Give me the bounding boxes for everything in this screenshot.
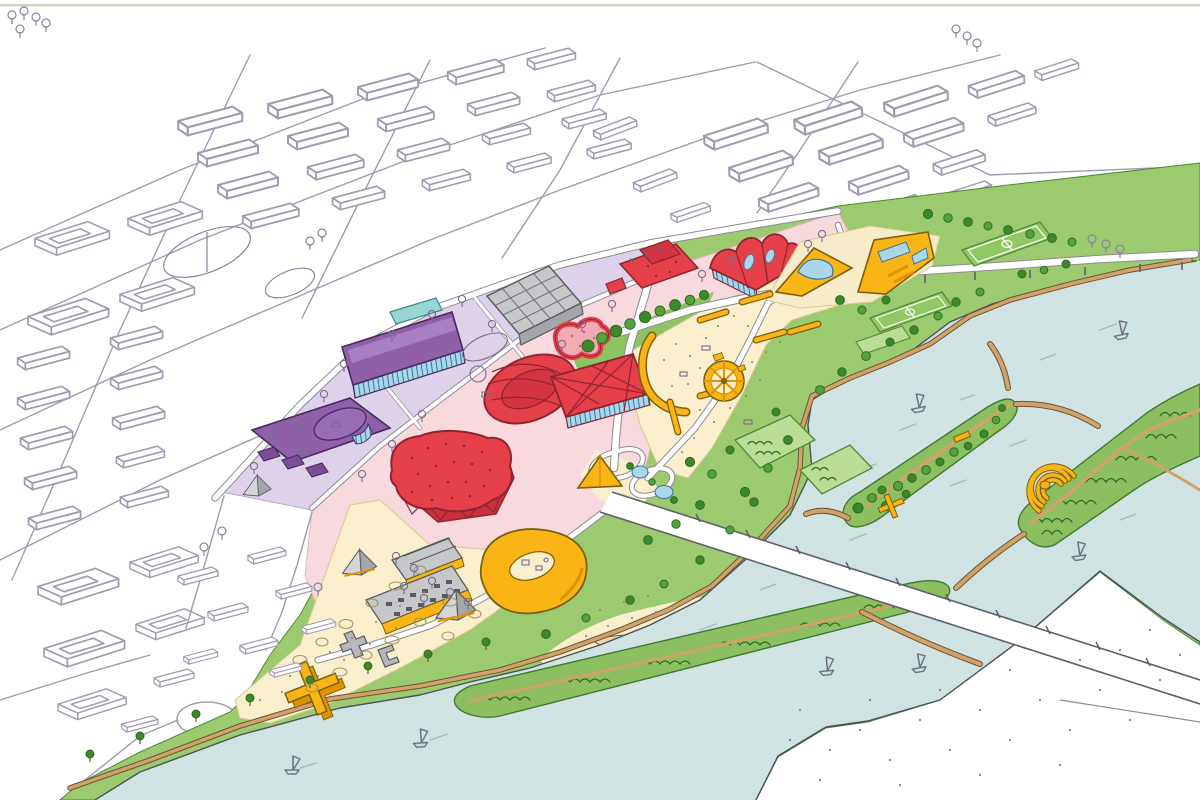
- masterplan-svg: [0, 0, 1200, 800]
- masterplan-illustration: [0, 0, 1200, 800]
- paper-edge-line: [0, 4, 1200, 7]
- red-convention-blob: [391, 431, 514, 522]
